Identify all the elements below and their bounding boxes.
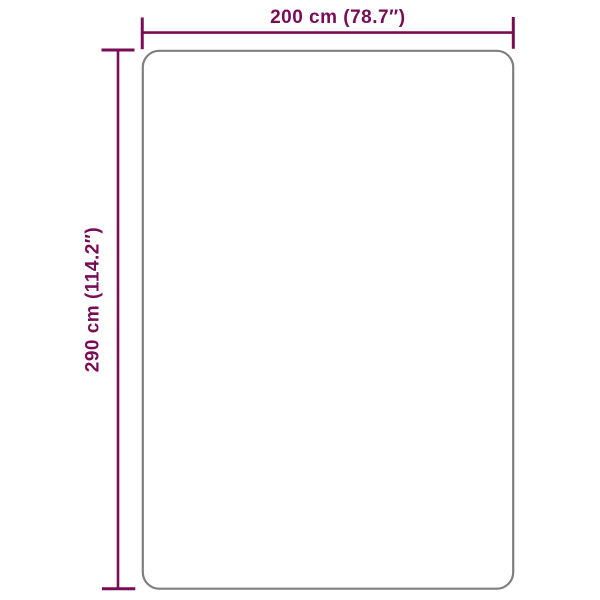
svg-text:290 cm (114.2″): 290 cm (114.2″): [82, 227, 103, 372]
svg-text:200 cm (78.7″): 200 cm (78.7″): [270, 7, 405, 28]
